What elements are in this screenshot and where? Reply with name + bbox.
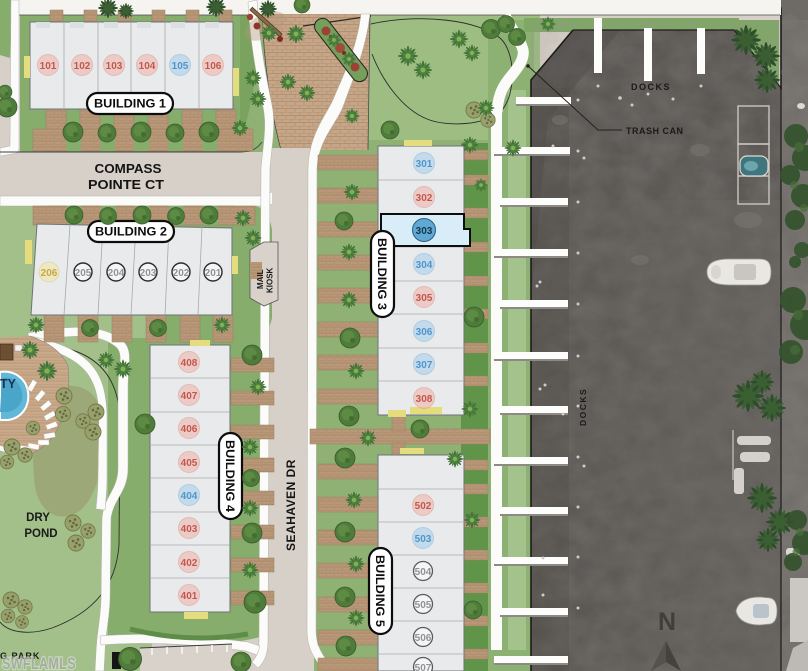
svg-text:POINTE CT: POINTE CT bbox=[88, 177, 164, 192]
svg-text:BUILDING 4: BUILDING 4 bbox=[223, 440, 237, 512]
svg-text:DOCKS: DOCKS bbox=[631, 82, 671, 92]
svg-text:406: 406 bbox=[181, 424, 198, 435]
svg-text:DRY: DRY bbox=[26, 512, 50, 524]
svg-text:303: 303 bbox=[416, 226, 433, 237]
svg-text:502: 502 bbox=[415, 501, 432, 512]
svg-text:DOCKS: DOCKS bbox=[578, 388, 588, 426]
svg-text:106: 106 bbox=[205, 61, 222, 72]
svg-text:201: 201 bbox=[205, 268, 222, 279]
svg-text:206: 206 bbox=[41, 268, 58, 279]
svg-text:308: 308 bbox=[416, 394, 433, 405]
svg-text:205: 205 bbox=[75, 268, 92, 279]
svg-text:203: 203 bbox=[140, 268, 157, 279]
svg-text:103: 103 bbox=[106, 61, 123, 72]
svg-text:SWFLAMLS: SWFLAMLS bbox=[2, 655, 76, 671]
svg-text:301: 301 bbox=[416, 159, 433, 170]
svg-text:BUILDING 5: BUILDING 5 bbox=[373, 555, 387, 627]
svg-text:304: 304 bbox=[416, 260, 433, 271]
svg-text:KIOSK: KIOSK bbox=[266, 267, 275, 293]
svg-text:404: 404 bbox=[181, 491, 198, 502]
svg-text:BUILDING 2: BUILDING 2 bbox=[95, 225, 167, 239]
svg-text:TY: TY bbox=[0, 377, 17, 391]
svg-text:307: 307 bbox=[416, 360, 433, 371]
svg-text:204: 204 bbox=[108, 268, 125, 279]
svg-text:401: 401 bbox=[181, 591, 198, 602]
svg-text:506: 506 bbox=[415, 633, 432, 644]
svg-text:MAIL: MAIL bbox=[256, 269, 265, 289]
svg-text:BUILDING 1: BUILDING 1 bbox=[94, 97, 166, 111]
svg-text:402: 402 bbox=[181, 558, 198, 569]
svg-text:405: 405 bbox=[181, 458, 198, 469]
svg-text:507: 507 bbox=[415, 663, 432, 671]
svg-text:COMPASS: COMPASS bbox=[95, 161, 162, 176]
svg-text:104: 104 bbox=[139, 61, 156, 72]
svg-text:306: 306 bbox=[416, 327, 433, 338]
svg-text:503: 503 bbox=[415, 534, 432, 545]
svg-text:403: 403 bbox=[181, 524, 198, 535]
svg-text:407: 407 bbox=[181, 391, 198, 402]
svg-text:SEAHAVEN DR: SEAHAVEN DR bbox=[284, 459, 298, 551]
svg-text:TRASH CAN: TRASH CAN bbox=[626, 126, 684, 136]
svg-text:102: 102 bbox=[74, 61, 91, 72]
svg-text:101: 101 bbox=[40, 61, 57, 72]
svg-text:N: N bbox=[658, 608, 676, 636]
svg-text:505: 505 bbox=[415, 600, 432, 611]
svg-text:POND: POND bbox=[24, 528, 57, 540]
svg-text:504: 504 bbox=[415, 567, 432, 578]
svg-text:BUILDING 3: BUILDING 3 bbox=[375, 238, 389, 310]
svg-text:202: 202 bbox=[173, 268, 190, 279]
svg-text:408: 408 bbox=[181, 358, 198, 369]
svg-text:105: 105 bbox=[172, 61, 189, 72]
svg-text:302: 302 bbox=[416, 193, 433, 204]
svg-text:305: 305 bbox=[416, 293, 433, 304]
